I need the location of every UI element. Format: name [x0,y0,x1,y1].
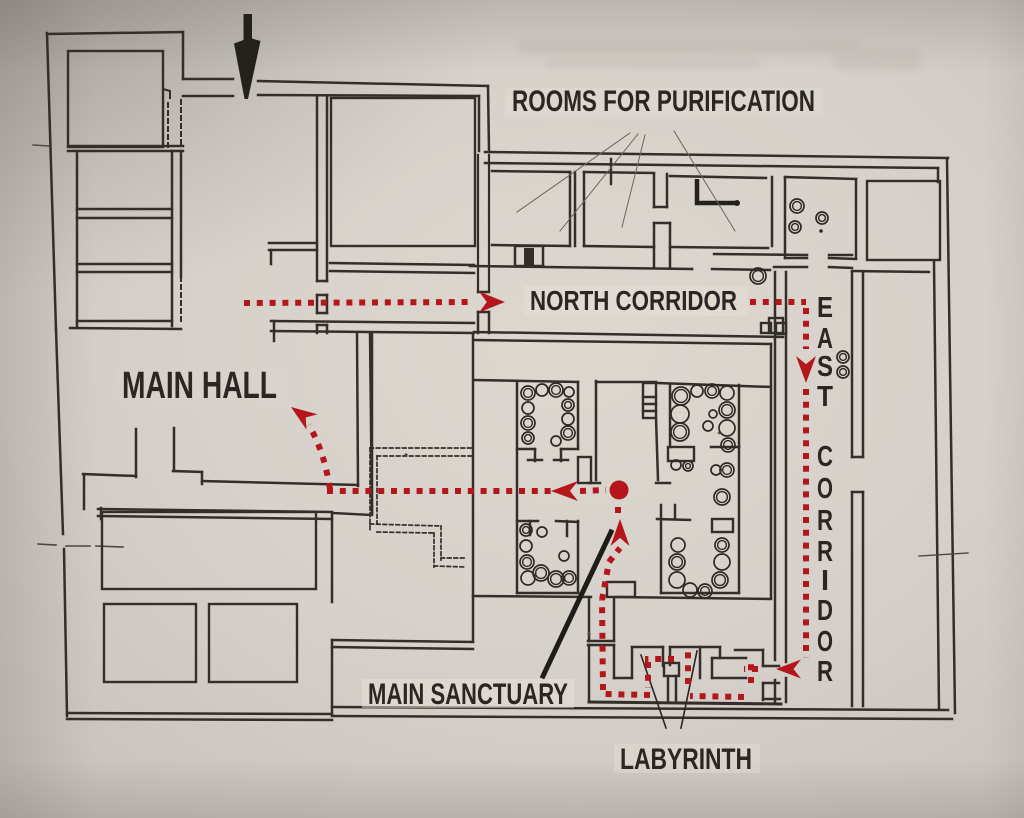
svg-text:R: R [817,505,833,537]
svg-text:T: T [817,381,833,413]
svg-text:E: E [817,292,833,324]
svg-text:NORTH CORRIDOR: NORTH CORRIDOR [530,285,737,316]
svg-text:C: C [817,441,833,473]
svg-text:O: O [817,473,833,505]
svg-text:S: S [817,351,833,383]
svg-text:R: R [817,536,833,568]
svg-text:LABYRINTH: LABYRINTH [620,743,752,776]
svg-text:ROOMS FOR PURIFICATION: ROOMS FOR PURIFICATION [512,85,815,118]
svg-text:I: I [821,565,829,597]
svg-text:O: O [817,626,833,658]
svg-text:MAIN HALL: MAIN HALL [122,365,277,407]
svg-text:D: D [817,595,833,627]
svg-text:R: R [817,656,833,688]
svg-text:MAIN SANCTUARY: MAIN SANCTUARY [368,678,568,711]
